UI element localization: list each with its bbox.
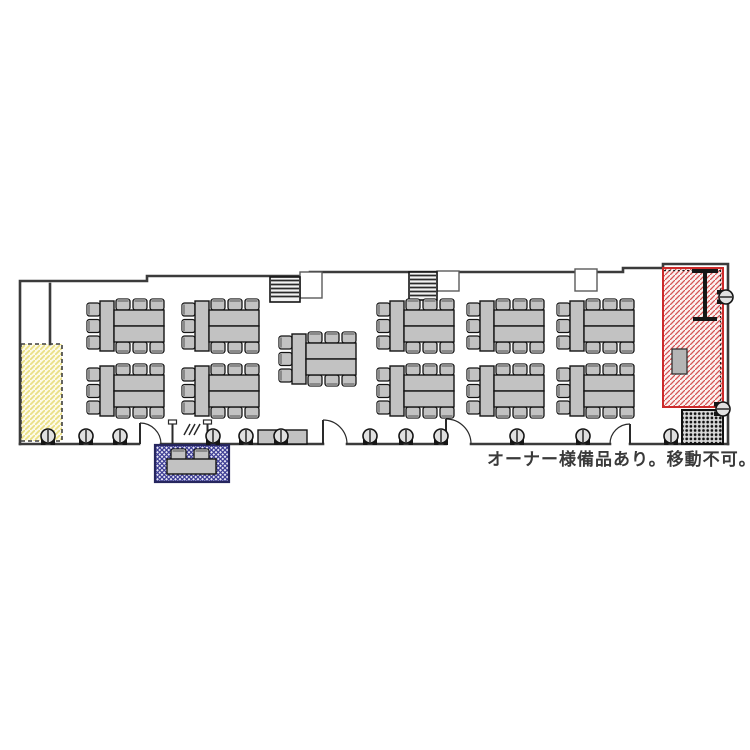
chair <box>603 364 617 375</box>
chair <box>133 342 147 353</box>
chair <box>557 401 570 414</box>
stool <box>79 429 93 445</box>
chair <box>228 299 242 310</box>
chair <box>211 364 225 375</box>
chair-back <box>182 386 185 396</box>
long-table-lower <box>494 326 544 342</box>
chair-back <box>425 415 436 418</box>
chair <box>513 407 527 418</box>
chair <box>325 375 339 386</box>
chair <box>467 385 480 398</box>
chair-back <box>182 338 185 348</box>
chair-back <box>213 364 224 367</box>
chair-back <box>467 338 470 348</box>
chair-back <box>173 449 185 452</box>
chair <box>440 364 454 375</box>
chair-back <box>327 332 338 335</box>
chair-back <box>557 321 560 331</box>
chair-back <box>247 299 258 302</box>
chair <box>377 320 390 333</box>
long-table-lower <box>114 391 164 407</box>
chair <box>325 332 339 343</box>
chair-back <box>467 305 470 315</box>
chair-back <box>213 415 224 418</box>
head-table <box>100 366 114 416</box>
chair <box>279 369 292 382</box>
wall-notch <box>300 272 322 298</box>
chair <box>133 299 147 310</box>
chair <box>377 401 390 414</box>
chair-back <box>230 299 241 302</box>
chair-back <box>135 415 146 418</box>
chair <box>245 364 259 375</box>
chair-back <box>467 321 470 331</box>
chair <box>245 342 259 353</box>
table-unit <box>182 299 259 353</box>
chair-back <box>230 415 241 418</box>
chair-back <box>344 383 355 386</box>
chair-back <box>498 415 509 418</box>
chair <box>586 407 600 418</box>
chair <box>211 299 225 310</box>
chair <box>182 401 195 414</box>
chair-back <box>532 299 543 302</box>
chair-back <box>498 350 509 353</box>
chair <box>423 364 437 375</box>
head-table <box>390 301 404 351</box>
table-unit <box>87 364 164 418</box>
chair-back <box>557 370 560 380</box>
chair-back <box>467 403 470 413</box>
chair <box>557 303 570 316</box>
chair-back <box>425 364 436 367</box>
chair-back <box>442 415 453 418</box>
chair-back <box>377 403 380 413</box>
chair-back <box>118 299 129 302</box>
chair-back <box>588 364 599 367</box>
long-table-lower <box>306 359 356 375</box>
post-cap <box>169 420 177 424</box>
head-table <box>390 366 404 416</box>
door <box>140 423 161 444</box>
zone-fixed-blue <box>155 445 229 482</box>
chair-back <box>557 386 560 396</box>
chair-back <box>247 364 258 367</box>
chair-back <box>87 305 90 315</box>
chair-back <box>515 364 526 367</box>
chair-back <box>498 364 509 367</box>
chair-back <box>87 386 90 396</box>
chair <box>133 407 147 418</box>
chair-back <box>532 350 543 353</box>
chair-back <box>588 350 599 353</box>
chair <box>116 407 130 418</box>
chair-back <box>135 364 146 367</box>
chair <box>182 385 195 398</box>
chair-back <box>377 321 380 331</box>
chair <box>467 336 480 349</box>
chair-back <box>467 386 470 396</box>
chair <box>342 332 356 343</box>
chair-back <box>588 299 599 302</box>
chair <box>423 407 437 418</box>
chair <box>557 385 570 398</box>
owner-equipment-note: オーナー様備品あり。移動不可。 <box>487 449 750 469</box>
chair <box>377 368 390 381</box>
chair-back <box>588 415 599 418</box>
chair-back <box>182 403 185 413</box>
chair <box>308 332 322 343</box>
chair <box>586 342 600 353</box>
chair-back <box>135 350 146 353</box>
chair <box>182 320 195 333</box>
chair-back <box>152 350 163 353</box>
louver-vent <box>409 272 437 300</box>
louver-vent <box>270 277 300 302</box>
chair-back <box>87 321 90 331</box>
long-table-upper <box>114 375 164 391</box>
chair <box>513 299 527 310</box>
chair <box>586 299 600 310</box>
stool <box>576 429 590 445</box>
chair <box>150 407 164 418</box>
chair <box>496 407 510 418</box>
chair <box>496 364 510 375</box>
chair <box>586 364 600 375</box>
door-swing-arc <box>446 419 471 444</box>
door-swing-arc <box>140 423 161 444</box>
chair-back <box>152 364 163 367</box>
chair-back <box>310 383 321 386</box>
post-cap <box>204 420 212 424</box>
chair-back <box>622 364 633 367</box>
chair-back <box>515 350 526 353</box>
chair <box>496 299 510 310</box>
chair-back <box>377 338 380 348</box>
chair-back <box>182 305 185 315</box>
chair-back <box>442 299 453 302</box>
table-unit <box>467 299 544 353</box>
floorplan-drawing: オーナー様備品あり。移動不可。 <box>0 0 750 750</box>
chair <box>116 299 130 310</box>
chair-back <box>152 299 163 302</box>
chair <box>467 320 480 333</box>
chair-back <box>425 299 436 302</box>
chair-back <box>622 415 633 418</box>
stool <box>714 402 730 416</box>
wall-notch <box>437 271 459 291</box>
chair <box>603 407 617 418</box>
chair <box>228 364 242 375</box>
chair-back <box>377 305 380 315</box>
table-unit <box>377 299 454 353</box>
chair-back <box>622 299 633 302</box>
chair-back <box>442 364 453 367</box>
chair <box>406 342 420 353</box>
chair-back <box>498 299 509 302</box>
long-table-upper <box>494 375 544 391</box>
chair-back <box>310 332 321 335</box>
chair <box>557 320 570 333</box>
chair <box>530 342 544 353</box>
chair <box>467 303 480 316</box>
chair-back <box>279 338 282 348</box>
long-table-lower <box>404 391 454 407</box>
door <box>446 419 471 444</box>
stool <box>239 429 253 445</box>
chair-back <box>408 364 419 367</box>
chair <box>406 407 420 418</box>
stool <box>41 429 55 445</box>
chair <box>150 342 164 353</box>
chair <box>211 342 225 353</box>
head-table <box>292 334 306 384</box>
stool <box>113 429 127 445</box>
chair-back <box>377 370 380 380</box>
chair-back <box>87 370 90 380</box>
wall-notch <box>575 269 597 291</box>
blue-zone-table <box>167 459 216 474</box>
chair <box>342 375 356 386</box>
head-table <box>570 301 584 351</box>
chair-back <box>213 299 224 302</box>
long-table-upper <box>584 310 634 326</box>
chair-back <box>622 350 633 353</box>
chair-back <box>515 299 526 302</box>
chair <box>530 407 544 418</box>
chair <box>87 368 100 381</box>
stool <box>510 429 524 445</box>
chair <box>406 364 420 375</box>
chair <box>557 368 570 381</box>
chair-back <box>327 383 338 386</box>
chair <box>440 299 454 310</box>
chair-back <box>605 299 616 302</box>
chair-back <box>532 415 543 418</box>
chair <box>116 364 130 375</box>
chair-back <box>605 364 616 367</box>
chair <box>513 364 527 375</box>
chair-back <box>182 370 185 380</box>
chair <box>182 336 195 349</box>
chair-back <box>230 364 241 367</box>
chair <box>620 299 634 310</box>
chair-back <box>152 415 163 418</box>
chair-back <box>279 371 282 381</box>
railing-posts <box>169 420 212 445</box>
head-table <box>100 301 114 351</box>
chair-back <box>213 350 224 353</box>
floorplan-page: オーナー様備品あり。移動不可。 <box>0 0 750 750</box>
chair-back <box>87 338 90 348</box>
stool <box>664 429 678 445</box>
long-table-lower <box>114 326 164 342</box>
stool <box>274 429 288 445</box>
chair-back <box>605 415 616 418</box>
chair-back <box>425 350 436 353</box>
table-unit <box>557 299 634 353</box>
zone-fixed-yellow <box>21 344 62 441</box>
chair <box>150 299 164 310</box>
chair-back <box>196 449 208 452</box>
chair-back <box>532 364 543 367</box>
chair <box>557 336 570 349</box>
chair <box>467 368 480 381</box>
i-beam-top-flange <box>692 269 718 273</box>
chair <box>116 342 130 353</box>
chair <box>182 303 195 316</box>
head-table <box>480 301 494 351</box>
chair <box>440 407 454 418</box>
chair <box>377 385 390 398</box>
long-table-upper <box>584 375 634 391</box>
chair-back <box>377 386 380 396</box>
chair <box>245 299 259 310</box>
head-table <box>570 366 584 416</box>
chair-back <box>247 350 258 353</box>
long-table-upper <box>209 310 259 326</box>
chair-back <box>87 403 90 413</box>
long-table-upper <box>404 375 454 391</box>
zone-fixed-red <box>663 268 723 407</box>
chair-back <box>118 350 129 353</box>
chair <box>620 364 634 375</box>
chair-back <box>557 338 560 348</box>
chair-back <box>557 403 560 413</box>
chair <box>150 364 164 375</box>
head-table <box>195 366 209 416</box>
head-table <box>480 366 494 416</box>
table-unit <box>467 364 544 418</box>
chair-back <box>442 350 453 353</box>
chair <box>279 353 292 366</box>
long-table-upper <box>114 310 164 326</box>
stool <box>717 290 733 304</box>
chair <box>228 342 242 353</box>
chair <box>308 375 322 386</box>
chair-back <box>605 350 616 353</box>
long-table-upper <box>306 343 356 359</box>
stool <box>399 429 413 445</box>
chair <box>228 407 242 418</box>
chair-back <box>118 415 129 418</box>
chair <box>87 303 100 316</box>
long-table-lower <box>584 391 634 407</box>
chair-back <box>467 370 470 380</box>
chair <box>467 401 480 414</box>
stool <box>363 429 377 445</box>
chair-back <box>408 299 419 302</box>
chair <box>423 299 437 310</box>
door-swing-arc <box>610 424 630 444</box>
chair-back <box>247 415 258 418</box>
long-table-lower <box>494 391 544 407</box>
chair-back <box>408 415 419 418</box>
chair <box>182 368 195 381</box>
chair <box>423 342 437 353</box>
table-unit <box>182 364 259 418</box>
chair-back <box>230 350 241 353</box>
door-swing-arc <box>323 420 347 444</box>
chair <box>513 342 527 353</box>
door <box>323 420 347 444</box>
red-zone-cabinet <box>672 349 687 374</box>
chair <box>530 364 544 375</box>
long-table-lower <box>404 326 454 342</box>
chair-back <box>279 354 282 364</box>
chair <box>603 299 617 310</box>
chair-back <box>408 350 419 353</box>
chair-back <box>135 299 146 302</box>
chair <box>377 303 390 316</box>
chair <box>245 407 259 418</box>
chair-back <box>182 321 185 331</box>
chair <box>377 336 390 349</box>
table-unit <box>377 364 454 418</box>
i-beam-bottom-flange <box>693 317 717 321</box>
long-table-lower <box>209 391 259 407</box>
long-table-upper <box>404 310 454 326</box>
chair <box>87 385 100 398</box>
table-unit <box>557 364 634 418</box>
chair <box>87 320 100 333</box>
chair <box>530 299 544 310</box>
chair-back <box>344 332 355 335</box>
chair <box>440 342 454 353</box>
chair-back <box>557 305 560 315</box>
stool <box>434 429 448 445</box>
chair <box>211 407 225 418</box>
chair <box>279 336 292 349</box>
chair-back <box>515 415 526 418</box>
stool <box>206 429 220 445</box>
long-table-lower <box>584 326 634 342</box>
chair <box>406 299 420 310</box>
head-table <box>195 301 209 351</box>
chair <box>620 407 634 418</box>
chair <box>87 401 100 414</box>
chair <box>620 342 634 353</box>
chair <box>496 342 510 353</box>
i-beam-stem <box>703 273 707 317</box>
table-unit <box>279 332 356 386</box>
table-unit <box>87 299 164 353</box>
long-table-upper <box>494 310 544 326</box>
long-table-upper <box>209 375 259 391</box>
long-table-lower <box>209 326 259 342</box>
door <box>610 424 630 444</box>
chair <box>603 342 617 353</box>
chair <box>87 336 100 349</box>
chair-back <box>118 364 129 367</box>
chair <box>133 364 147 375</box>
